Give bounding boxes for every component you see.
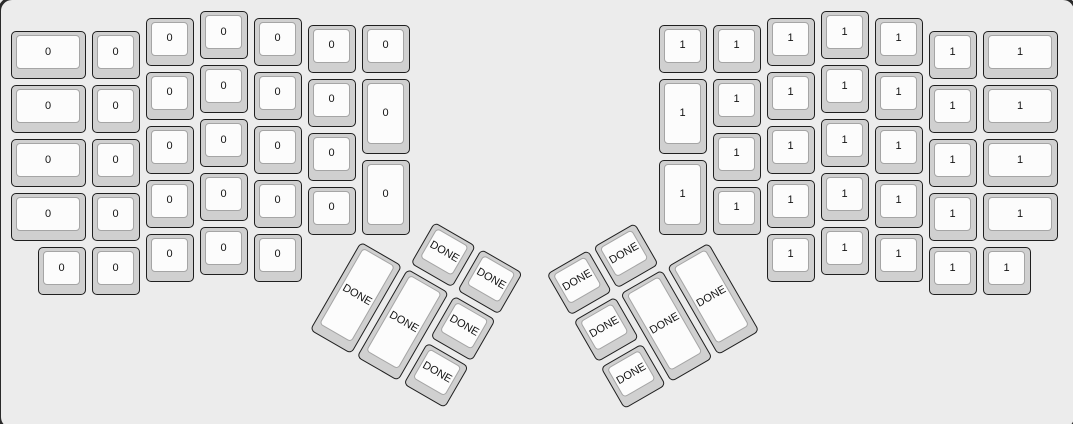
key-0[interactable]: 0 xyxy=(11,139,86,187)
keycap-surface: 1 xyxy=(772,22,809,56)
keycap-surface: 0 xyxy=(367,29,404,63)
keyboard-canvas: 0000000000000000000000000000000011111111… xyxy=(0,0,1073,424)
keycap-surface: 1 xyxy=(988,197,1052,231)
key-1[interactable]: 1 xyxy=(821,119,869,167)
keycap-surface: 1 xyxy=(772,76,809,110)
key-0[interactable]: 0 xyxy=(254,234,302,282)
keycap-surface: 0 xyxy=(151,130,188,164)
key-label: 0 xyxy=(112,155,118,166)
key-1[interactable]: 1 xyxy=(713,187,761,235)
key-label: 1 xyxy=(841,135,847,146)
key-label: DONE xyxy=(648,310,681,335)
key-0[interactable]: 0 xyxy=(362,25,410,73)
key-0[interactable]: 0 xyxy=(92,31,140,79)
key-1[interactable]: 1 xyxy=(713,79,761,127)
key-1[interactable]: 1 xyxy=(659,160,707,235)
key-0[interactable]: 0 xyxy=(11,85,86,133)
key-label: 0 xyxy=(45,47,51,58)
keycap-surface: 0 xyxy=(205,15,242,49)
key-0[interactable]: 0 xyxy=(200,173,248,221)
keycap-surface: 1 xyxy=(988,143,1052,177)
key-label: 0 xyxy=(166,195,172,206)
keycap-surface: 0 xyxy=(151,22,188,56)
keycap-surface: 1 xyxy=(826,231,863,265)
keycap-surface: 1 xyxy=(880,76,917,110)
keycap-surface: 1 xyxy=(988,251,1025,285)
keycap-surface: 1 xyxy=(880,130,917,164)
key-label: 1 xyxy=(895,87,901,98)
keycap-surface: 0 xyxy=(16,197,80,231)
key-0[interactable]: 0 xyxy=(254,180,302,228)
keycap-surface: 0 xyxy=(16,89,80,123)
keycap-surface: 1 xyxy=(934,89,971,123)
key-0[interactable]: 0 xyxy=(11,193,86,241)
key-0[interactable]: 0 xyxy=(146,234,194,282)
key-0[interactable]: 0 xyxy=(92,247,140,295)
key-1[interactable]: 1 xyxy=(983,247,1031,295)
key-1[interactable]: 1 xyxy=(767,234,815,282)
key-label: 1 xyxy=(787,141,793,152)
keycap-surface: 1 xyxy=(934,143,971,177)
key-label: 1 xyxy=(895,33,901,44)
key-label: 0 xyxy=(274,249,280,260)
key-0[interactable]: 0 xyxy=(200,11,248,59)
keycap-surface: DONE xyxy=(440,301,489,349)
key-1[interactable]: 1 xyxy=(659,79,707,154)
keycap-surface: DONE xyxy=(607,349,656,397)
key-label: 0 xyxy=(45,101,51,112)
key-label: 0 xyxy=(274,141,280,152)
key-1[interactable]: 1 xyxy=(875,18,923,66)
key-1[interactable]: 1 xyxy=(983,31,1058,79)
key-label: 0 xyxy=(112,209,118,220)
keycap-surface: 0 xyxy=(97,35,134,69)
keycap-surface: 0 xyxy=(259,238,296,272)
key-label: 1 xyxy=(841,189,847,200)
key-1[interactable]: 1 xyxy=(821,11,869,59)
key-1[interactable]: 1 xyxy=(875,72,923,120)
key-label: DONE xyxy=(561,267,594,292)
key-1[interactable]: 1 xyxy=(713,133,761,181)
key-1[interactable]: 1 xyxy=(713,25,761,73)
key-label: 0 xyxy=(166,33,172,44)
key-label: 1 xyxy=(1017,209,1023,220)
key-label: 1 xyxy=(841,81,847,92)
key-label: 1 xyxy=(895,249,901,260)
key-1[interactable]: 1 xyxy=(929,193,977,241)
key-0[interactable]: 0 xyxy=(200,119,248,167)
key-label: 0 xyxy=(274,195,280,206)
keycap-surface: 0 xyxy=(259,130,296,164)
keycap-surface: 1 xyxy=(772,130,809,164)
key-0[interactable]: 0 xyxy=(92,139,140,187)
key-label: DONE xyxy=(341,282,374,307)
keycap-surface: 1 xyxy=(664,29,701,63)
key-1[interactable]: 1 xyxy=(821,173,869,221)
keycap-surface: 0 xyxy=(97,89,134,123)
key-label: 1 xyxy=(949,101,955,112)
key-1[interactable]: 1 xyxy=(929,247,977,295)
key-0[interactable]: 0 xyxy=(200,227,248,275)
keycap-surface: 0 xyxy=(313,137,350,171)
keycap-surface: DONE xyxy=(420,227,469,275)
keycap-surface: 1 xyxy=(880,238,917,272)
keycap-surface: 0 xyxy=(313,191,350,225)
key-label: 0 xyxy=(45,209,51,220)
key-1[interactable]: 1 xyxy=(875,180,923,228)
keycap-surface: DONE xyxy=(580,303,629,351)
key-0[interactable]: 0 xyxy=(38,247,86,295)
key-label: DONE xyxy=(421,359,454,384)
keycap-surface: 1 xyxy=(934,35,971,69)
key-label: 1 xyxy=(679,108,685,119)
key-label: 0 xyxy=(328,202,334,213)
key-0[interactable]: 0 xyxy=(362,79,410,154)
key-label: 0 xyxy=(166,87,172,98)
key-label: DONE xyxy=(588,314,621,339)
keycap-surface: 1 xyxy=(772,238,809,272)
key-label: 0 xyxy=(328,148,334,159)
keycap-surface: DONE xyxy=(553,256,602,304)
key-label: DONE xyxy=(428,239,461,264)
key-1[interactable]: 1 xyxy=(929,31,977,79)
key-label: 0 xyxy=(45,155,51,166)
key-1[interactable]: 1 xyxy=(659,25,707,73)
key-label: 1 xyxy=(1017,101,1023,112)
key-label: 1 xyxy=(1017,47,1023,58)
key-0[interactable]: 0 xyxy=(308,187,356,235)
keycap-surface: 0 xyxy=(97,197,134,231)
key-label: DONE xyxy=(448,312,481,337)
key-1[interactable]: 1 xyxy=(875,126,923,174)
keycap-surface: 1 xyxy=(772,184,809,218)
key-0[interactable]: 0 xyxy=(146,72,194,120)
key-label: 0 xyxy=(220,189,226,200)
key-label: 0 xyxy=(382,189,388,200)
keycap-surface: 0 xyxy=(205,177,242,211)
keycap-surface: 0 xyxy=(259,76,296,110)
key-label: 0 xyxy=(112,101,118,112)
keycap-surface: 1 xyxy=(826,69,863,103)
keycap-surface: 1 xyxy=(664,83,701,144)
key-1[interactable]: 1 xyxy=(929,139,977,187)
key-0[interactable]: 0 xyxy=(308,133,356,181)
key-1[interactable]: 1 xyxy=(875,234,923,282)
key-label: 1 xyxy=(787,195,793,206)
keycap-surface: 0 xyxy=(205,123,242,157)
key-label: 1 xyxy=(1017,155,1023,166)
keycap-surface: 1 xyxy=(826,15,863,49)
key-0[interactable]: 0 xyxy=(92,193,140,241)
key-label: 1 xyxy=(895,195,901,206)
key-label: 1 xyxy=(1003,263,1009,274)
key-label: DONE xyxy=(387,309,420,334)
key-label: 0 xyxy=(112,263,118,274)
key-label: 1 xyxy=(895,141,901,152)
key-label: 1 xyxy=(841,243,847,254)
key-0[interactable]: 0 xyxy=(200,65,248,113)
key-0[interactable]: 0 xyxy=(254,18,302,66)
keycap-surface: 0 xyxy=(97,251,134,285)
keycap-surface: 1 xyxy=(988,89,1052,123)
key-label: 1 xyxy=(733,40,739,51)
keycap-surface: 1 xyxy=(664,164,701,225)
key-0[interactable]: 0 xyxy=(254,72,302,120)
keycap-surface: 0 xyxy=(259,184,296,218)
key-label: 1 xyxy=(733,202,739,213)
key-label: 1 xyxy=(949,155,955,166)
key-label: DONE xyxy=(475,266,508,291)
key-label: 0 xyxy=(220,27,226,38)
keycap-surface: 1 xyxy=(718,191,755,225)
key-1[interactable]: 1 xyxy=(767,126,815,174)
key-label: 1 xyxy=(949,209,955,220)
keycap-surface: DONE xyxy=(413,348,462,396)
keycap-surface: 0 xyxy=(367,164,404,225)
key-0[interactable]: 0 xyxy=(146,18,194,66)
keycap-surface: 0 xyxy=(16,143,80,177)
key-1[interactable]: 1 xyxy=(929,85,977,133)
key-label: 1 xyxy=(787,87,793,98)
key-label: DONE xyxy=(615,361,648,386)
keycap-surface: 1 xyxy=(718,29,755,63)
key-label: 1 xyxy=(787,249,793,260)
key-1[interactable]: 1 xyxy=(983,85,1058,133)
key-label: 0 xyxy=(220,135,226,146)
key-label: 0 xyxy=(274,33,280,44)
key-label: 1 xyxy=(841,27,847,38)
key-label: 0 xyxy=(328,40,334,51)
key-label: 0 xyxy=(220,243,226,254)
keycap-surface: 0 xyxy=(151,184,188,218)
keycap-surface: 1 xyxy=(988,35,1052,69)
key-label: 1 xyxy=(949,263,955,274)
keycap-surface: 0 xyxy=(151,238,188,272)
key-0[interactable]: 0 xyxy=(92,85,140,133)
key-1[interactable]: 1 xyxy=(821,65,869,113)
key-label: 0 xyxy=(328,94,334,105)
key-1[interactable]: 1 xyxy=(983,139,1058,187)
key-label: 0 xyxy=(382,108,388,119)
keycap-surface: DONE xyxy=(467,254,516,302)
key-0[interactable]: 0 xyxy=(146,126,194,174)
keycap-surface: 0 xyxy=(205,231,242,265)
key-label: 0 xyxy=(166,141,172,152)
key-label: 0 xyxy=(274,87,280,98)
key-0[interactable]: 0 xyxy=(254,126,302,174)
key-0[interactable]: 0 xyxy=(362,160,410,235)
key-0[interactable]: 0 xyxy=(308,79,356,127)
keycap-surface: 1 xyxy=(934,197,971,231)
key-label: 1 xyxy=(679,189,685,200)
key-label: 0 xyxy=(58,263,64,274)
key-label: 1 xyxy=(787,33,793,44)
key-label: 0 xyxy=(112,47,118,58)
keycap-surface: 1 xyxy=(718,83,755,117)
keycap-surface: 0 xyxy=(205,69,242,103)
key-1[interactable]: 1 xyxy=(983,193,1058,241)
keycap-surface: 0 xyxy=(367,83,404,144)
keycap-surface: 1 xyxy=(880,22,917,56)
keycap-surface: 0 xyxy=(43,251,80,285)
key-1[interactable]: 1 xyxy=(767,72,815,120)
keycap-surface: 1 xyxy=(880,184,917,218)
keycap-surface: DONE xyxy=(600,229,649,277)
key-1[interactable]: 1 xyxy=(767,18,815,66)
keycap-surface: 0 xyxy=(97,143,134,177)
key-label: 0 xyxy=(220,81,226,92)
key-label: DONE xyxy=(608,240,641,265)
key-label: 1 xyxy=(733,94,739,105)
keycap-surface: 1 xyxy=(826,177,863,211)
keycap-surface: 0 xyxy=(151,76,188,110)
key-label: DONE xyxy=(695,283,728,308)
key-0[interactable]: 0 xyxy=(11,31,86,79)
key-1[interactable]: 1 xyxy=(767,180,815,228)
key-1[interactable]: 1 xyxy=(821,227,869,275)
key-label: 1 xyxy=(679,40,685,51)
key-0[interactable]: 0 xyxy=(308,25,356,73)
key-label: 0 xyxy=(382,40,388,51)
keycap-surface: 1 xyxy=(718,137,755,171)
key-label: 1 xyxy=(949,47,955,58)
key-0[interactable]: 0 xyxy=(146,180,194,228)
keycap-surface: 1 xyxy=(934,251,971,285)
keycap-surface: 0 xyxy=(259,22,296,56)
key-label: 1 xyxy=(733,148,739,159)
key-label: 0 xyxy=(166,249,172,260)
keycap-surface: 1 xyxy=(826,123,863,157)
keycap-surface: 0 xyxy=(313,29,350,63)
keycap-surface: 0 xyxy=(16,35,80,69)
keycap-surface: 0 xyxy=(313,83,350,117)
